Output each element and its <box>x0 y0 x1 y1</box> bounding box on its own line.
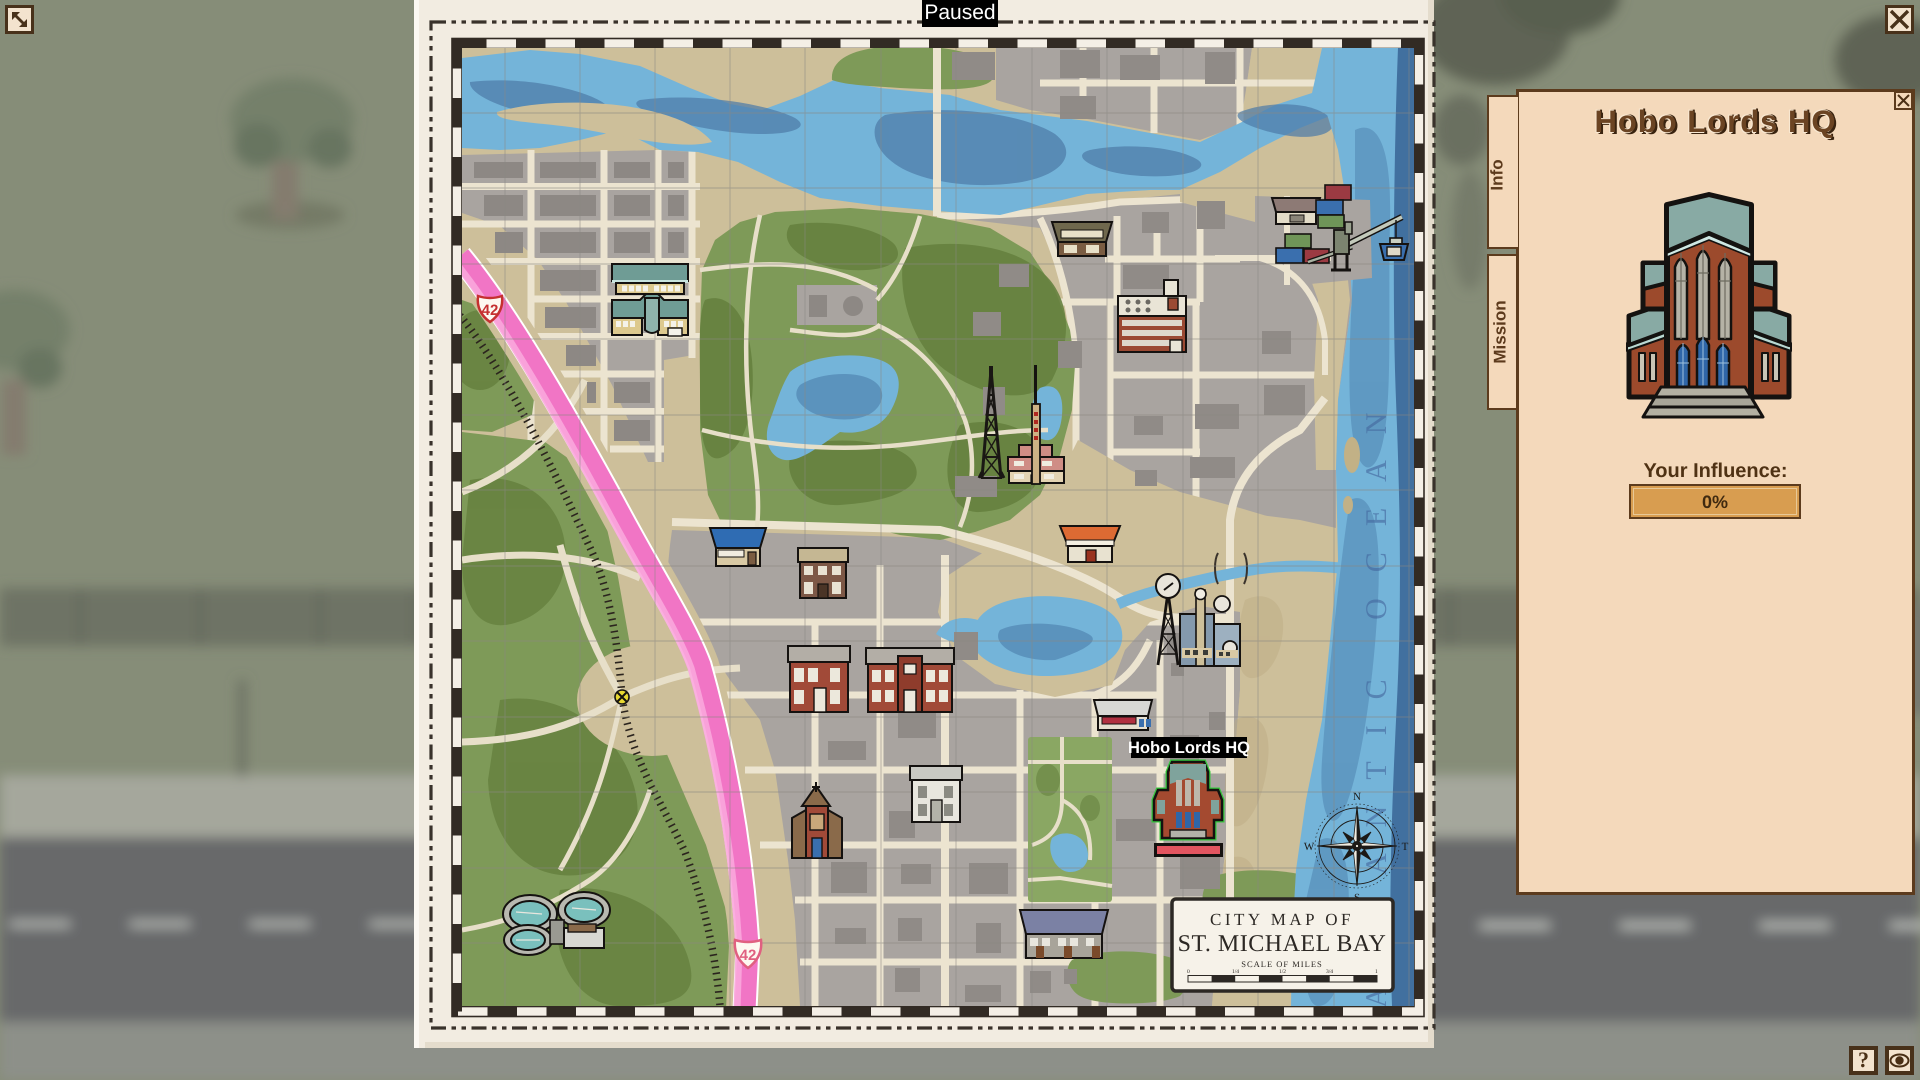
svg-text:SCALE OF MILES: SCALE OF MILES <box>1241 959 1323 969</box>
svg-text:W: W <box>1304 841 1315 853</box>
svg-text:ST. MICHAEL BAY: ST. MICHAEL BAY <box>1178 931 1387 957</box>
svg-text:1/2: 1/2 <box>1279 969 1286 975</box>
svg-text:42: 42 <box>482 302 499 319</box>
svg-text:0: 0 <box>1187 969 1190 975</box>
svg-text:1: 1 <box>1375 969 1378 975</box>
svg-text:42: 42 <box>740 947 757 964</box>
svg-text:N: N <box>1353 791 1361 803</box>
svg-text:3/4: 3/4 <box>1326 969 1333 975</box>
svg-text:1/4: 1/4 <box>1232 969 1239 975</box>
svg-text:CITY MAP OF: CITY MAP OF <box>1210 910 1354 929</box>
svg-text:T: T <box>1402 841 1409 853</box>
svg-text:Hobo Lords HQ: Hobo Lords HQ <box>1128 739 1250 757</box>
